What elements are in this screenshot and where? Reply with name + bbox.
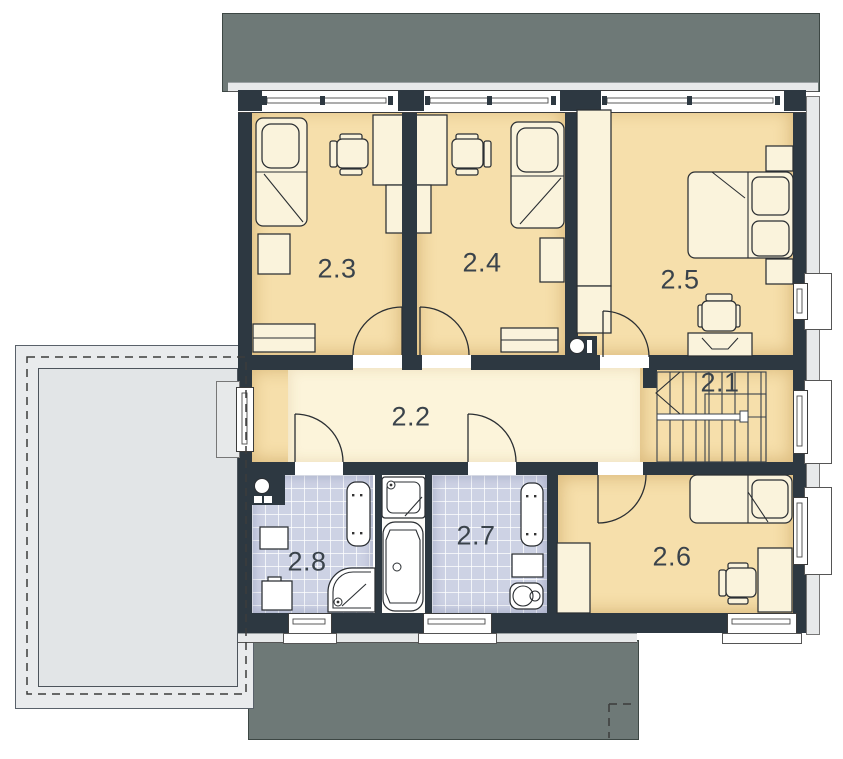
bath-niche-fixtures (382, 477, 425, 611)
chair-arm (340, 169, 362, 175)
chair-back (330, 141, 337, 167)
fixtures-bathroom-2-7 (510, 483, 543, 609)
flue-circle (570, 339, 585, 354)
furniture-bedroom-2-5 (577, 110, 793, 356)
room-label-bathroom-2-7: 2.7 (456, 521, 495, 552)
desk-chair (702, 301, 736, 331)
furniture-bedroom-2-3 (253, 118, 368, 352)
chair-back (706, 294, 732, 301)
stair-break-line (656, 372, 680, 414)
glass-right-2-1 (797, 396, 802, 446)
chair-back (484, 141, 491, 167)
corner-shower (328, 568, 375, 612)
stair-handrail (657, 414, 742, 420)
furniture-bedroom-2-4 (452, 122, 564, 352)
towel-radiator (347, 482, 370, 546)
bathtub-drain (393, 563, 401, 571)
bed-pillow (752, 480, 788, 518)
door-bathroom-2-8 (295, 414, 343, 462)
shared-desk-2-3-2-4 (373, 113, 447, 237)
flue-vent (587, 340, 592, 353)
wardrobe (577, 110, 611, 286)
glass-bottom-2-8 (293, 619, 325, 624)
wall-over-desk (402, 113, 417, 237)
desk (758, 548, 792, 612)
floor-plan: 2.1 2.2 2.3 2.4 2.5 2.6 2.7 2.8 (0, 0, 843, 759)
handrail-post (740, 411, 748, 422)
door-bedroom-2-3 (353, 307, 402, 355)
roof-dashed-marks (27, 357, 637, 738)
bed-pillow (752, 177, 789, 215)
bathtub (383, 522, 423, 611)
nightstand (766, 146, 793, 171)
bed-pillow (262, 124, 299, 168)
glass-top-1 (267, 98, 386, 103)
glass-right-2-5 (797, 289, 802, 313)
bath-cabinet (512, 554, 543, 577)
closet (577, 286, 611, 333)
shower-head-dot (390, 484, 393, 487)
room-label-hall: 2.2 (391, 402, 430, 433)
room-label-bedroom-2-4: 2.4 (462, 248, 501, 279)
bed-pillow (517, 128, 558, 172)
washing-machine (262, 581, 292, 610)
nightstand (766, 259, 793, 284)
towel-radiator (521, 483, 543, 546)
glass-right-2-6 (797, 503, 802, 557)
door-bedroom-2-6 (598, 475, 646, 523)
room-label-bedroom-2-3: 2.3 (317, 254, 356, 285)
chair-back (719, 570, 726, 596)
room-label-bedroom-2-6: 2.6 (652, 542, 691, 573)
lower-roof-dashed-corner (609, 704, 637, 738)
flue-circle (255, 479, 270, 494)
garage-roof-dashed-outline (27, 357, 246, 694)
desk (688, 333, 752, 356)
desk-chair (337, 139, 368, 168)
glass-bottom-2-6 (732, 619, 790, 624)
door-bedroom-2-4 (420, 307, 469, 355)
wardrobe (557, 543, 590, 613)
desk-chair (452, 139, 483, 168)
bed-pillow (752, 221, 789, 256)
shower-head-dot (337, 601, 340, 604)
nightstand (258, 234, 290, 274)
nightstand (540, 238, 564, 282)
room-label-bedroom-2-5: 2.5 (660, 265, 699, 296)
glass-bottom-2-7 (428, 619, 485, 624)
chair-arm (456, 169, 478, 175)
room-label-staircase: 2.1 (700, 368, 739, 399)
room-label-bathroom-2-8: 2.8 (287, 547, 326, 578)
chair-arm (728, 598, 748, 604)
chimney-2-5 (565, 336, 597, 357)
bath-bench (260, 527, 288, 549)
chimney-hall (252, 475, 285, 505)
desk-chair (726, 568, 756, 597)
door-bathroom-2-7 (468, 414, 516, 462)
